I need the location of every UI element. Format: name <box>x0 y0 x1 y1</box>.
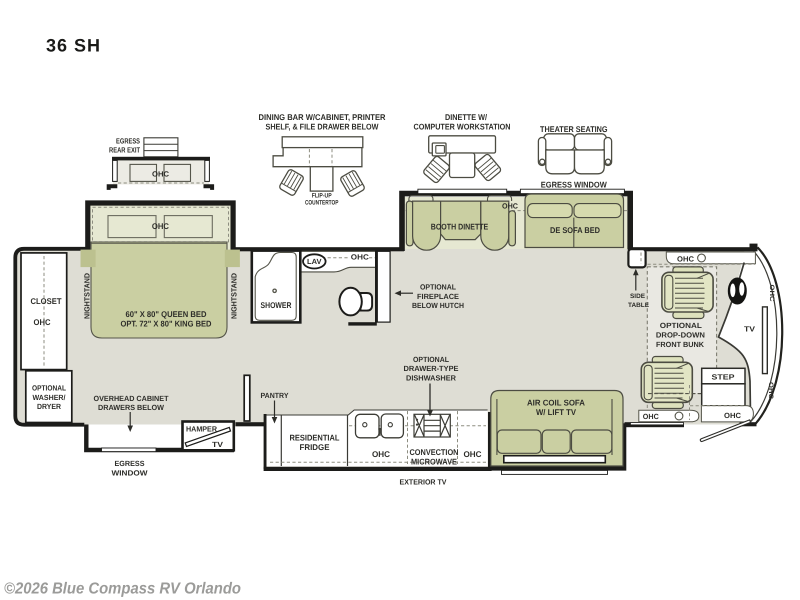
svg-text:©2026 Blue Compass RV Orlando: ©2026 Blue Compass RV Orlando <box>4 581 241 598</box>
svg-text:DRAWER-TYPE: DRAWER-TYPE <box>404 364 459 373</box>
svg-text:OPT. 72" X 80" KING BED: OPT. 72" X 80" KING BED <box>121 319 212 329</box>
svg-text:FRIDGE: FRIDGE <box>300 442 330 452</box>
svg-text:TV: TV <box>744 324 755 333</box>
svg-text:OHC: OHC <box>724 411 742 420</box>
svg-text:OHC: OHC <box>152 170 170 179</box>
svg-text:RESIDENTIAL: RESIDENTIAL <box>290 432 340 442</box>
svg-text:DINETTE W/: DINETTE W/ <box>445 112 488 122</box>
svg-text:W/ LIFT TV: W/ LIFT TV <box>536 407 576 417</box>
svg-text:WINDOW: WINDOW <box>112 468 149 477</box>
svg-text:REAR EXIT: REAR EXIT <box>109 146 140 155</box>
svg-text:AIR COIL SOFA: AIR COIL SOFA <box>527 397 585 407</box>
svg-text:HAMPER: HAMPER <box>186 425 218 434</box>
svg-text:DE SOFA BED: DE SOFA BED <box>550 225 600 235</box>
svg-text:OHC: OHC <box>643 412 660 421</box>
svg-text:NIGHTSTAND: NIGHTSTAND <box>83 272 92 319</box>
svg-text:DISHWASHER: DISHWASHER <box>406 374 457 383</box>
svg-text:OHC: OHC <box>351 252 370 261</box>
svg-text:CLOSET: CLOSET <box>31 296 62 306</box>
svg-text:MICROWAVE: MICROWAVE <box>411 456 457 466</box>
svg-text:NIGHTSTAND: NIGHTSTAND <box>230 272 239 319</box>
svg-text:PANTRY: PANTRY <box>261 391 289 400</box>
svg-text:OHC: OHC <box>768 285 775 302</box>
svg-text:DINING BAR W/CABINET, PRINTER: DINING BAR W/CABINET, PRINTER <box>259 112 386 122</box>
svg-text:TABLE: TABLE <box>628 302 650 309</box>
svg-text:OPTIONAL: OPTIONAL <box>413 355 449 364</box>
svg-text:LAV: LAV <box>307 257 322 266</box>
svg-text:SHELF, & FILE DRAWER BELOW: SHELF, & FILE DRAWER BELOW <box>266 122 379 132</box>
svg-text:OPTIONAL: OPTIONAL <box>660 321 702 330</box>
svg-text:COMPUTER WORKSTATION: COMPUTER WORKSTATION <box>414 122 511 132</box>
svg-text:BOOTH DINETTE: BOOTH DINETTE <box>431 222 489 232</box>
svg-text:OPTIONAL: OPTIONAL <box>420 282 456 291</box>
svg-text:OVERHEAD CABINET: OVERHEAD CABINET <box>94 394 169 403</box>
svg-text:STEP: STEP <box>712 372 735 381</box>
svg-text:WASHER/: WASHER/ <box>33 393 67 402</box>
svg-text:TV: TV <box>212 440 223 449</box>
svg-text:COUNTERTOP: COUNTERTOP <box>305 199 339 206</box>
svg-text:EGRESS: EGRESS <box>116 137 140 146</box>
svg-text:OPTIONAL: OPTIONAL <box>32 383 66 392</box>
svg-text:EGRESS: EGRESS <box>115 459 145 468</box>
svg-text:BELOW HUTCH: BELOW HUTCH <box>412 301 464 310</box>
svg-text:SIDE: SIDE <box>630 293 646 300</box>
svg-text:DROP-DOWN: DROP-DOWN <box>656 330 705 339</box>
svg-text:OHC: OHC <box>34 317 51 327</box>
svg-text:EGRESS WINDOW: EGRESS WINDOW <box>541 180 607 190</box>
svg-text:EXTERIOR TV: EXTERIOR TV <box>400 477 447 486</box>
svg-text:36 SH: 36 SH <box>46 36 101 56</box>
svg-text:OHC: OHC <box>464 449 482 459</box>
svg-text:FRONT BUNK: FRONT BUNK <box>656 340 705 349</box>
svg-text:60" X 80" QUEEN BED: 60" X 80" QUEEN BED <box>126 309 207 319</box>
svg-text:SHOWER: SHOWER <box>261 300 292 310</box>
svg-text:OHC: OHC <box>767 382 774 399</box>
svg-text:CONVECTION: CONVECTION <box>410 447 459 457</box>
svg-text:OHC: OHC <box>152 221 169 231</box>
svg-text:THEATER SEATING: THEATER SEATING <box>540 124 608 134</box>
svg-text:OHC: OHC <box>677 254 695 263</box>
svg-text:DRAWERS BELOW: DRAWERS BELOW <box>98 403 165 412</box>
svg-text:FIREPLACE: FIREPLACE <box>417 292 459 301</box>
svg-text:DRYER: DRYER <box>37 402 62 411</box>
svg-text:OHC: OHC <box>502 202 519 211</box>
svg-text:OHC: OHC <box>372 449 390 459</box>
